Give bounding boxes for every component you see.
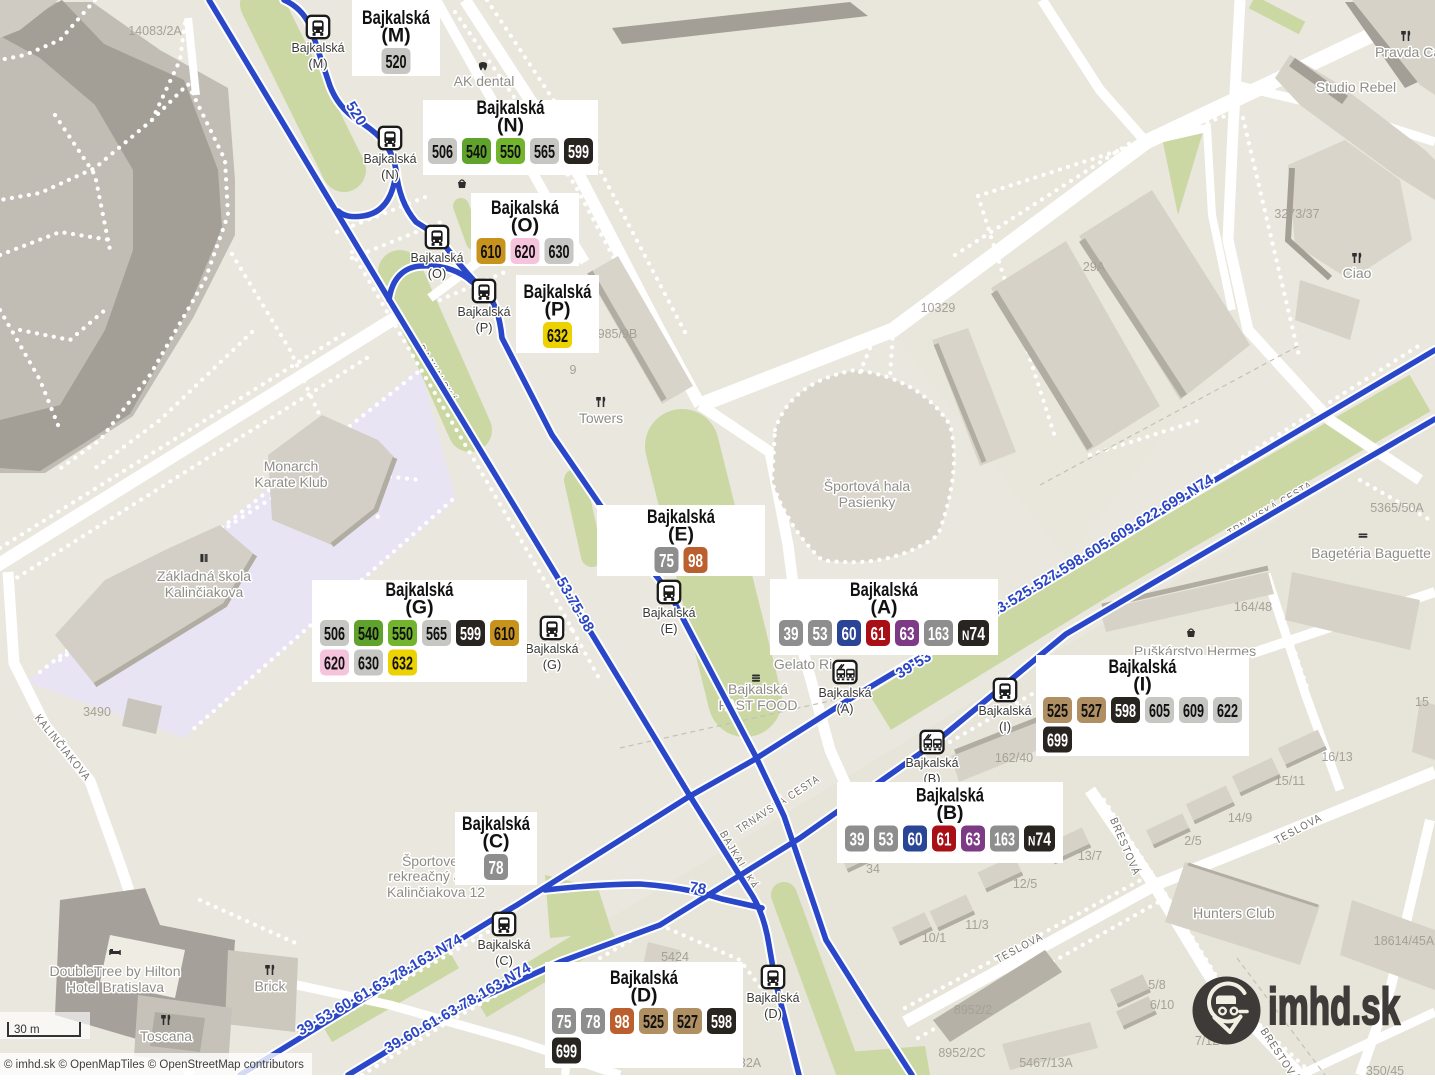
svg-text:18614/45A: 18614/45A <box>1374 934 1435 948</box>
svg-text:8952/2C: 8952/2C <box>938 1046 985 1060</box>
svg-text:(A): (A) <box>870 597 897 619</box>
svg-text:5424: 5424 <box>661 950 689 964</box>
svg-text:540: 540 <box>358 623 379 644</box>
svg-text:(P): (P) <box>545 299 571 321</box>
svg-text:10329: 10329 <box>921 301 956 315</box>
svg-text:75: 75 <box>659 550 674 571</box>
svg-text:Kalinčiakova 12: Kalinčiakova 12 <box>387 884 485 900</box>
svg-text:599: 599 <box>460 623 481 644</box>
svg-text:506: 506 <box>432 141 453 162</box>
svg-text:Toscana: Toscana <box>140 1028 192 1044</box>
svg-text:Kalinčiakova: Kalinčiakova <box>165 584 244 600</box>
svg-text:3490: 3490 <box>83 705 111 719</box>
svg-text:rekreačný a: rekreačný a <box>388 868 461 884</box>
svg-text:163: 163 <box>994 829 1015 850</box>
svg-text:565: 565 <box>534 141 555 162</box>
svg-text:(N): (N) <box>497 115 524 137</box>
svg-text:Bajkalská: Bajkalská <box>458 304 512 319</box>
svg-text:527: 527 <box>1081 700 1102 721</box>
svg-text:622: 622 <box>1217 700 1238 721</box>
svg-text:8952/2: 8952/2 <box>954 1003 992 1017</box>
svg-text:5365/50A: 5365/50A <box>1370 501 1424 515</box>
svg-text:599: 599 <box>568 141 589 162</box>
svg-text:Pravda Caf: Pravda Caf <box>1375 44 1435 60</box>
svg-text:© imhd.sk © OpenMapTiles © Ope: © imhd.sk © OpenMapTiles © OpenStreetMap… <box>4 1059 304 1071</box>
svg-text:Bajkalská: Bajkalská <box>292 40 346 55</box>
svg-text:Monarch: Monarch <box>264 458 318 474</box>
svg-text:14083/2A: 14083/2A <box>128 24 182 38</box>
svg-text:5467/13A: 5467/13A <box>1019 1056 1073 1070</box>
svg-text:Karate Klub: Karate Klub <box>254 474 327 490</box>
svg-text:609: 609 <box>1183 700 1204 721</box>
svg-text:(D): (D) <box>630 985 657 1007</box>
svg-text:Studio Rebel: Studio Rebel <box>1316 79 1396 95</box>
svg-text:Bajkalská: Bajkalská <box>979 703 1033 718</box>
svg-text:Bajkalská: Bajkalská <box>819 685 873 700</box>
svg-text:630: 630 <box>549 241 570 262</box>
svg-text:550: 550 <box>500 141 521 162</box>
svg-text:53: 53 <box>879 829 894 850</box>
svg-text:(C): (C) <box>482 831 509 853</box>
svg-text:(N): (N) <box>381 167 399 182</box>
svg-text:30 m: 30 m <box>14 1024 40 1036</box>
svg-text:63: 63 <box>900 623 915 644</box>
svg-text:(A): (A) <box>836 701 853 716</box>
svg-text:(B): (B) <box>936 802 963 824</box>
svg-text:75: 75 <box>557 1011 572 1032</box>
svg-text:14/9: 14/9 <box>1228 811 1252 825</box>
svg-text:(M): (M) <box>381 25 410 47</box>
svg-text:(O): (O) <box>511 215 539 237</box>
svg-text:610: 610 <box>481 241 502 262</box>
svg-text:39: 39 <box>784 623 799 644</box>
svg-text:3273/37: 3273/37 <box>1274 207 1319 221</box>
svg-text:506: 506 <box>324 623 345 644</box>
svg-text:Bajkalská: Bajkalská <box>411 250 465 265</box>
svg-text:Bajkalská: Bajkalská <box>364 151 418 166</box>
svg-text:DoubleTree by Hilton: DoubleTree by Hilton <box>50 963 181 979</box>
svg-text:(E): (E) <box>660 621 677 636</box>
svg-text:163: 163 <box>928 623 949 644</box>
svg-text:60: 60 <box>842 623 857 644</box>
svg-text:Hunters Club: Hunters Club <box>1193 905 1275 921</box>
svg-text:16/13: 16/13 <box>1321 750 1352 764</box>
svg-text:11/3: 11/3 <box>965 918 988 932</box>
svg-text:(D): (D) <box>764 1006 782 1021</box>
svg-text:63: 63 <box>966 829 981 850</box>
svg-text:620: 620 <box>324 653 345 674</box>
svg-text:34: 34 <box>866 862 880 876</box>
svg-text:5/8: 5/8 <box>1148 978 1165 992</box>
svg-text:10/1: 10/1 <box>922 931 946 945</box>
svg-text:(I): (I) <box>999 719 1011 734</box>
svg-text:13/7: 13/7 <box>1078 849 1102 863</box>
svg-text:Pasienky: Pasienky <box>839 494 896 510</box>
svg-text:imhd.sk: imhd.sk <box>1268 978 1400 1036</box>
svg-text:(C): (C) <box>495 953 513 968</box>
svg-text:53: 53 <box>813 623 828 644</box>
svg-text:(M): (M) <box>308 56 327 71</box>
svg-text:Bajkalská: Bajkalská <box>478 937 532 952</box>
svg-text:AK dental: AK dental <box>454 73 515 89</box>
svg-text:61: 61 <box>937 829 952 850</box>
svg-text:520: 520 <box>386 51 407 72</box>
svg-text:Základná škola: Základná škola <box>157 568 251 584</box>
svg-text:565: 565 <box>426 623 447 644</box>
svg-text:6/10: 6/10 <box>1150 998 1174 1012</box>
svg-text:525: 525 <box>1047 700 1068 721</box>
svg-text:(G): (G) <box>405 597 433 619</box>
svg-text:(I): (I) <box>1133 674 1151 696</box>
svg-text:98: 98 <box>615 1011 630 1032</box>
svg-text:Športove: Športove <box>402 853 458 869</box>
svg-text:2/5: 2/5 <box>1184 834 1201 848</box>
svg-text:15: 15 <box>1415 695 1429 709</box>
svg-text:Bajkalská: Bajkalská <box>643 605 697 620</box>
svg-text:Bajkalská: Bajkalská <box>747 990 801 1005</box>
svg-text:350/45: 350/45 <box>1366 1064 1404 1075</box>
svg-text:78: 78 <box>688 879 707 899</box>
svg-text:550: 550 <box>392 623 413 644</box>
svg-text:61: 61 <box>871 623 886 644</box>
svg-text:Bagetéria Baguette: Bagetéria Baguette <box>1311 545 1431 561</box>
svg-text:525: 525 <box>643 1011 664 1032</box>
svg-text:78: 78 <box>586 1011 601 1032</box>
svg-text:9: 9 <box>570 363 577 377</box>
svg-text:Športová hala: Športová hala <box>824 478 911 494</box>
svg-text:699: 699 <box>1047 730 1068 751</box>
svg-text:Hotel Bratislava: Hotel Bratislava <box>66 979 164 995</box>
svg-text:699: 699 <box>556 1041 577 1062</box>
svg-text:60: 60 <box>908 829 923 850</box>
svg-text:632: 632 <box>547 325 568 346</box>
svg-text:162/40: 162/40 <box>995 751 1033 765</box>
svg-text:29A: 29A <box>1083 260 1106 274</box>
svg-text:527: 527 <box>677 1011 698 1032</box>
svg-text:78: 78 <box>489 857 504 878</box>
svg-text:164/48: 164/48 <box>1234 600 1272 614</box>
svg-text:Gelato Rio: Gelato Rio <box>774 656 840 672</box>
svg-text:Towers: Towers <box>579 410 623 426</box>
svg-text:Ciao: Ciao <box>1343 265 1372 281</box>
svg-text:620: 620 <box>515 241 536 262</box>
svg-text:98: 98 <box>688 550 703 571</box>
svg-text:(P): (P) <box>475 320 492 335</box>
svg-text:Bajkalská: Bajkalská <box>728 681 788 697</box>
svg-text:(O): (O) <box>428 266 446 281</box>
svg-text:(E): (E) <box>668 524 694 546</box>
svg-text:12/5: 12/5 <box>1013 877 1037 891</box>
svg-text:630: 630 <box>358 653 379 674</box>
svg-text:Bajkalská: Bajkalská <box>526 641 580 656</box>
svg-text:610: 610 <box>494 623 515 644</box>
svg-text:Brick: Brick <box>254 978 286 994</box>
svg-text:632: 632 <box>392 653 413 674</box>
svg-text:(G): (G) <box>543 657 561 672</box>
svg-text:540: 540 <box>466 141 487 162</box>
svg-text:15/11: 15/11 <box>1275 774 1305 788</box>
svg-text:598: 598 <box>1115 700 1136 721</box>
svg-text:39: 39 <box>850 829 865 850</box>
svg-text:598: 598 <box>711 1011 732 1032</box>
svg-text:605: 605 <box>1149 700 1170 721</box>
svg-text:Bajkalská: Bajkalská <box>906 755 960 770</box>
